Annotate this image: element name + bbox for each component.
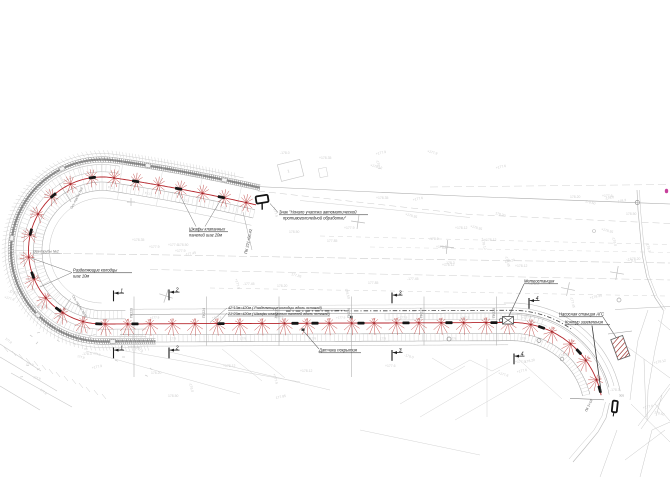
svg-text:3: 3: [399, 291, 402, 297]
svg-text:ПК227: ПК227: [420, 308, 424, 318]
svg-text:+177.6: +177.6: [385, 364, 396, 368]
svg-text:-177.45: -177.45: [243, 282, 255, 286]
svg-text:178.50: 178.50: [289, 230, 299, 234]
svg-text:+177.9: +177.9: [460, 316, 470, 320]
svg-text:ПК226: ПК226: [347, 308, 351, 318]
svg-text:Метеостанция: Метеостанция: [524, 279, 555, 284]
svg-text:42*10м=420м ( Разделяющие коло: 42*10м=420м ( Разделяющие колодцы вдоль …: [228, 306, 323, 310]
svg-text:178.50: 178.50: [178, 243, 188, 247]
svg-text:+178.12: +178.12: [455, 226, 467, 230]
svg-text:+177.9: +177.9: [175, 249, 186, 253]
svg-text:178.20: 178.20: [570, 195, 580, 199]
svg-text:1778: 1778: [380, 337, 387, 341]
svg-text:305: 305: [619, 394, 624, 398]
svg-text:+177.9: +177.9: [398, 316, 408, 320]
svg-text:+178.12: +178.12: [515, 264, 527, 268]
svg-text:1778: 1778: [240, 337, 247, 341]
svg-text:Насосная станция АГС: Насосная станция АГС: [559, 312, 604, 317]
svg-text:Разделяющие колодцы: Разделяющие колодцы: [73, 268, 117, 273]
svg-text:177.85: 177.85: [327, 239, 337, 243]
svg-text:противогололедной обработки": противогололедной обработки": [283, 216, 347, 221]
svg-text:178.50: 178.50: [626, 212, 636, 216]
svg-text:+177.6: +177.6: [168, 243, 179, 247]
svg-text:Контур заземления: Контур заземления: [565, 320, 604, 325]
svg-text:+177.9: +177.9: [149, 245, 160, 249]
svg-text:ПК228: ПК228: [492, 308, 496, 318]
svg-text:+177.9: +177.9: [212, 316, 222, 320]
svg-text:+177.9: +177.9: [274, 316, 284, 320]
svg-text:177.85: 177.85: [368, 281, 378, 285]
svg-text:-177.45: -177.45: [407, 277, 419, 281]
svg-text:-178.3: -178.3: [610, 388, 620, 392]
svg-text:+178.35: +178.35: [376, 196, 388, 200]
svg-text:4: 4: [536, 296, 539, 302]
svg-text:ПК224: ПК224: [202, 308, 206, 318]
svg-text:Ось трубы №2: Ось трубы №2: [33, 250, 59, 254]
svg-text:ПК223: ПК223: [130, 308, 134, 318]
svg-text:+177.9: +177.9: [344, 226, 355, 230]
svg-text:2: 2: [175, 346, 179, 352]
svg-text:+177.9: +177.9: [522, 316, 532, 320]
svg-text:1778: 1778: [170, 337, 177, 341]
svg-text:+177.6: +177.6: [602, 194, 613, 198]
svg-text:4: 4: [521, 352, 524, 358]
svg-text:1: 1: [120, 346, 123, 352]
svg-text:178.50: 178.50: [168, 394, 178, 398]
svg-text:Шкафы клапанных: Шкафы клапанных: [189, 227, 226, 232]
svg-text:1: 1: [120, 289, 123, 295]
svg-text:178.20: 178.20: [277, 284, 287, 288]
svg-text:+178.12: +178.12: [436, 245, 448, 249]
svg-text:панелей шаг 20м: панелей шаг 20м: [189, 233, 222, 238]
svg-text:1778: 1778: [520, 337, 527, 341]
svg-text:+177.9: +177.9: [336, 316, 346, 320]
svg-text:+178.12: +178.12: [300, 369, 312, 373]
svg-text:Датчики покрытия: Датчики покрытия: [318, 348, 358, 353]
svg-text:-178.3: -178.3: [445, 261, 455, 265]
svg-text:1778: 1778: [310, 337, 317, 341]
svg-text:-178.0: -178.0: [280, 151, 290, 155]
svg-text:178.20: 178.20: [630, 257, 640, 261]
svg-text:Знак "Начало участка автоматич: Знак "Начало участка автоматической: [279, 210, 357, 215]
svg-text:+178.35: +178.35: [132, 238, 144, 242]
svg-text:-178.0: -178.0: [429, 237, 439, 241]
svg-text:3: 3: [399, 348, 402, 354]
svg-text:шаг 10м: шаг 10м: [73, 274, 89, 279]
svg-text:2: 2: [175, 288, 179, 294]
svg-text:1778: 1778: [450, 337, 457, 341]
svg-text:+177.9: +177.9: [150, 316, 160, 320]
svg-text:+178.35: +178.35: [319, 156, 331, 160]
